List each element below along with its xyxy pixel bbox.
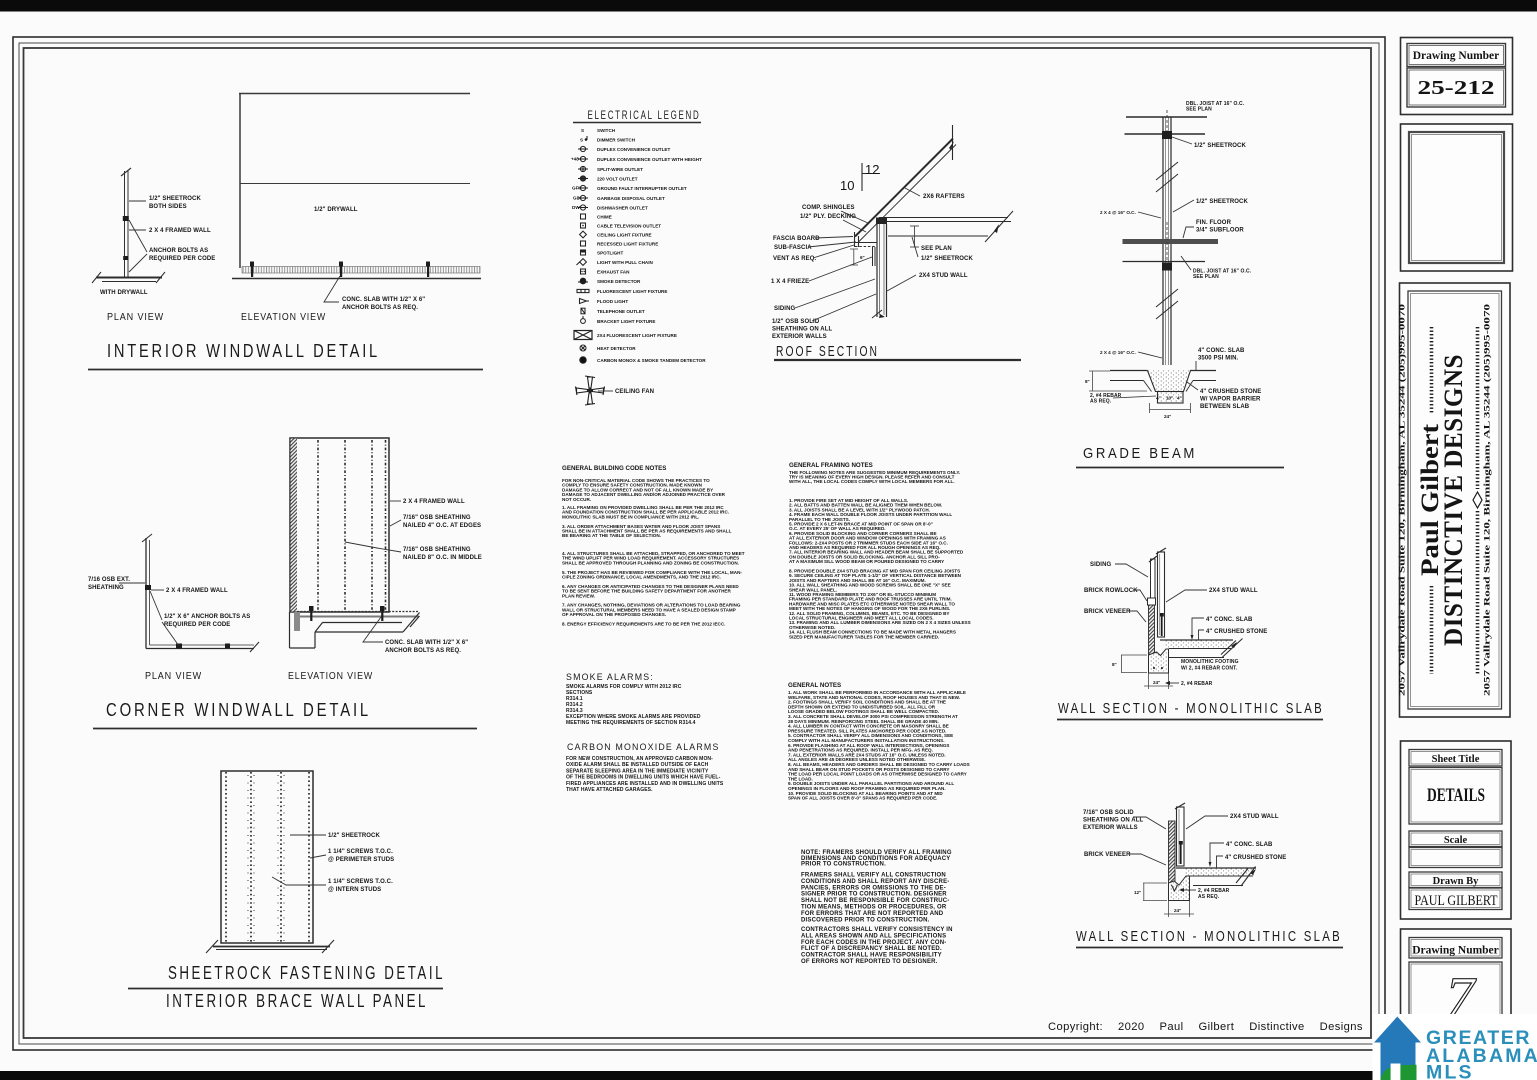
svg-text:1/2" SHEETROCK: 1/2" SHEETROCK xyxy=(921,256,973,262)
svg-text:SEE PLAN: SEE PLAN xyxy=(921,246,952,252)
svg-text:NAILED 8" O.C. IN MIDDLE: NAILED 8" O.C. IN MIDDLE xyxy=(403,555,482,561)
svg-text:220 VOLT OUTLET: 220 VOLT OUTLET xyxy=(597,176,638,181)
svg-text:4" CONC. SLAB: 4" CONC. SLAB xyxy=(1198,348,1245,354)
svg-text:FIN. FLOOR: FIN. FLOOR xyxy=(1196,220,1232,226)
svg-text:NAILED 4" O.C. AT EDGES: NAILED 4" O.C. AT EDGES xyxy=(403,523,481,529)
svg-text:ALL AREAS SHOWN AND ALL SPECIF: ALL AREAS SHOWN AND ALL SPECIFICATIONS xyxy=(801,933,946,939)
svg-text:SIGNER PRIOR TO CONSTRUCTION.: SIGNER PRIOR TO CONSTRUCTION. DESIGNER xyxy=(801,892,947,898)
svg-text:MONOLITHIC SLAB MUST BE IN COM: MONOLITHIC SLAB MUST BE IN COMPLIANCE WI… xyxy=(562,514,699,519)
svg-text:REQUIRED PER CODE: REQUIRED PER CODE xyxy=(164,622,230,628)
svg-text:CONC. SLAB WITH 1/2" X 6": CONC. SLAB WITH 1/2" X 6" xyxy=(385,640,468,646)
svg-text:AS REQ.: AS REQ. xyxy=(1198,894,1220,900)
svg-text:BRICK VENEER: BRICK VENEER xyxy=(1084,609,1131,615)
svg-text:FOR EACH CODES IN THE PROJECT.: FOR EACH CODES IN THE PROJECT. ANY CON- xyxy=(801,940,946,946)
svg-text:6": 6" xyxy=(860,255,865,260)
svg-text:2X4 FLUORESCENT LIGHT FIXTURE: 2X4 FLUORESCENT LIGHT FIXTURE xyxy=(597,333,677,338)
svg-text:2X4 STUD WALL: 2X4 STUD WALL xyxy=(1230,814,1279,820)
svg-text:HEAT DETECTOR: HEAT DETECTOR xyxy=(597,346,636,351)
svg-text:Drawing Number: Drawing Number xyxy=(1413,50,1500,62)
svg-text:MONOLITHIC FOOTING: MONOLITHIC FOOTING xyxy=(1181,659,1239,665)
svg-text:FLUORESCENT LIGHT FIXTURE: FLUORESCENT LIGHT FIXTURE xyxy=(597,289,667,294)
svg-text:OF APPROVAL ON THE PROPOSED CH: OF APPROVAL ON THE PROPOSED CHANGES. xyxy=(562,612,666,617)
svg-text:WITH ALL, THE LOCAL CODES COMP: WITH ALL, THE LOCAL CODES COMPLY WITH LO… xyxy=(789,479,955,484)
svg-text:25-212: 25-212 xyxy=(1418,77,1495,99)
svg-text:LIGHT WITH PULL CHAIN: LIGHT WITH PULL CHAIN xyxy=(597,260,653,265)
svg-text:ANCHOR BOLTS AS: ANCHOR BOLTS AS xyxy=(149,248,208,254)
svg-text:CONTRACTORS SHALL VERIFY CONSI: CONTRACTORS SHALL VERIFY CONSISTENCY IN xyxy=(801,927,953,933)
svg-text:@ PERIMETER STUDS: @ PERIMETER STUDS xyxy=(328,857,394,863)
svg-text:WALL SECTION - MONOLITHIC SLAB: WALL SECTION - MONOLITHIC SLAB xyxy=(1076,928,1342,945)
svg-text:CARBON MONOX & SMOKE TANDEM DE: CARBON MONOX & SMOKE TANDEM DETECTOR xyxy=(597,358,706,363)
svg-text:RECESSED LIGHT FIXTURE: RECESSED LIGHT FIXTURE xyxy=(597,241,658,246)
svg-text:PLAN VIEW: PLAN VIEW xyxy=(145,670,202,682)
svg-text:7/16" OSB SHEATHING: 7/16" OSB SHEATHING xyxy=(403,547,471,553)
svg-text:BETWEEN SLAB: BETWEEN SLAB xyxy=(1200,404,1250,410)
svg-text:OF THE BEDROOMS IN DWELLING UN: OF THE BEDROOMS IN DWELLING UNITS WHICH … xyxy=(566,775,721,781)
svg-text:MEETING THE REQUIREMENTS OF SE: MEETING THE REQUIREMENTS OF SECTION R314… xyxy=(566,720,696,726)
svg-text:REQUIRED PER CODE: REQUIRED PER CODE xyxy=(149,256,215,262)
svg-text:GENERAL BUILDING CODE NOTES: GENERAL BUILDING CODE NOTES xyxy=(562,465,666,472)
svg-text:CEILING LIGHT FIXTURE: CEILING LIGHT FIXTURE xyxy=(597,232,652,237)
svg-text:CONTRACTOR SHALL HAVE RESPONSI: CONTRACTOR SHALL HAVE RESPONSIBILITY xyxy=(801,953,942,959)
svg-text:WITH DRYWALL: WITH DRYWALL xyxy=(100,290,148,296)
svg-text:1/2" SHEETROCK: 1/2" SHEETROCK xyxy=(328,833,380,839)
svg-text:GENERAL NOTES: GENERAL NOTES xyxy=(788,682,841,689)
svg-text:+48: +48 xyxy=(571,157,579,162)
svg-text:NOT OCCUR.: NOT OCCUR. xyxy=(562,497,591,502)
svg-text:SMOKE ALARMS:: SMOKE ALARMS: xyxy=(566,672,654,682)
svg-text:SPAN OF ALL JOISTS OVER 8'-0": SPAN OF ALL JOISTS OVER 8'-0" SPANS AS R… xyxy=(788,796,937,801)
svg-text:W/ 2, #4 REBAR CONT.: W/ 2, #4 REBAR CONT. xyxy=(1181,666,1238,672)
svg-text:BRACKET LIGHT FIXTURE: BRACKET LIGHT FIXTURE xyxy=(597,319,655,324)
svg-text:7/16" OSB SHEATHING: 7/16" OSB SHEATHING xyxy=(403,515,471,521)
svg-text:PRIOR TO CONSTRUCTION.: PRIOR TO CONSTRUCTION. xyxy=(801,862,886,868)
svg-text:TELEPHONE OUTLET: TELEPHONE OUTLET xyxy=(597,309,645,314)
svg-text:SEE PLAN: SEE PLAN xyxy=(1193,274,1219,280)
svg-text:4" CRUSHED STONE: 4" CRUSHED STONE xyxy=(1225,855,1286,861)
svg-text:BOTH SIDES: BOTH SIDES xyxy=(149,204,187,210)
svg-text:4" CRUSHED STONE: 4" CRUSHED STONE xyxy=(1200,389,1261,395)
svg-text:2X6 RAFTERS: 2X6 RAFTERS xyxy=(923,194,965,200)
svg-text:DIMMER SWITCH: DIMMER SWITCH xyxy=(597,137,636,142)
svg-text:ELEVATION VIEW: ELEVATION VIEW xyxy=(241,311,326,323)
svg-text:Drawn By: Drawn By xyxy=(1433,876,1480,887)
svg-text:SIDING: SIDING xyxy=(774,306,796,312)
svg-text:DUPLEX CONVENIENCE OUTLET: DUPLEX CONVENIENCE OUTLET xyxy=(597,147,670,152)
svg-text:SHEATHING ON ALL: SHEATHING ON ALL xyxy=(772,327,832,333)
svg-text:Drawing Number: Drawing Number xyxy=(1412,945,1499,957)
svg-text:24": 24" xyxy=(1164,414,1171,419)
svg-text:FLICT OF A DISCREPANCY SHALL B: FLICT OF A DISCREPANCY SHALL BE NOTED. xyxy=(801,946,942,952)
svg-text:@ INTERN STUDS: @ INTERN STUDS xyxy=(328,887,381,893)
svg-text:THE LOAD PER LOCAL POINT LOADS: THE LOAD PER LOCAL POINT LOADS OR AS OTH… xyxy=(788,772,967,777)
svg-text:CARBON MONOXIDE ALARMS: CARBON MONOXIDE ALARMS xyxy=(567,742,720,752)
svg-text:4": 4" xyxy=(1156,396,1161,401)
svg-text:7/16" OSB SOLID: 7/16" OSB SOLID xyxy=(1083,810,1134,816)
svg-text:ELECTRICAL LEGEND: ELECTRICAL LEGEND xyxy=(588,108,701,122)
svg-text:3/4" SUBFLOOR: 3/4" SUBFLOOR xyxy=(1196,228,1244,234)
svg-text:24": 24" xyxy=(1153,680,1160,685)
svg-text:SPLIT-WIRE OUTLET: SPLIT-WIRE OUTLET xyxy=(597,167,643,172)
svg-text:1/2" SHEETROCK: 1/2" SHEETROCK xyxy=(1196,199,1248,205)
svg-text:CEILING FAN: CEILING FAN xyxy=(615,389,654,395)
svg-text:CIPLE ZONING ORDINANCE, LOCAL: CIPLE ZONING ORDINANCE, LOCAL AMENDMENTS… xyxy=(562,575,721,580)
svg-text:ANCHOR BOLTS AS REQ.: ANCHOR BOLTS AS REQ. xyxy=(342,305,418,311)
svg-text:CHIME: CHIME xyxy=(597,214,612,219)
svg-text:FLOOD LIGHT: FLOOD LIGHT xyxy=(597,299,628,304)
svg-text:2X4 STUD WALL: 2X4 STUD WALL xyxy=(919,273,968,279)
svg-text:1 1/4" SCREWS T.O.C.: 1 1/4" SCREWS T.O.C. xyxy=(328,849,393,855)
svg-text:FOR NEW CONSTRUCTION, AN APPRO: FOR NEW CONSTRUCTION, AN APPROVED CARBON… xyxy=(566,756,713,762)
svg-text:AT A MAXIMUM SILL WOOD BEAM OR: AT A MAXIMUM SILL WOOD BEAM OR POURED DE… xyxy=(789,559,944,564)
svg-text:OF ERRORS NOT REPORTED TO DESI: OF ERRORS NOT REPORTED TO DESIGNER. xyxy=(801,959,938,965)
svg-text:ROOF SECTION: ROOF SECTION xyxy=(776,343,879,360)
svg-text:MLS: MLS xyxy=(1426,1062,1474,1080)
svg-text:COMP. SHINGLES: COMP. SHINGLES xyxy=(802,205,855,211)
svg-text:SPOTLIGHT: SPOTLIGHT xyxy=(597,250,623,255)
svg-text:SUB-FASCIA: SUB-FASCIA xyxy=(774,245,812,251)
svg-text:1/2" X 6" ANCHOR BOLTS AS: 1/2" X 6" ANCHOR BOLTS AS xyxy=(164,614,250,620)
svg-text:FRAMERS SHALL VERIFY ALL CONST: FRAMERS SHALL VERIFY ALL CONSTRUCTION xyxy=(801,873,946,879)
svg-text:FOR ERRORS THAT ARE NOT REPORT: FOR ERRORS THAT ARE NOT REPORTED AND xyxy=(801,911,944,917)
svg-text:S: S xyxy=(580,138,583,143)
svg-text:OXIDE ALARM SHALL BE INSTALLED: OXIDE ALARM SHALL BE INSTALLED OUTSIDE O… xyxy=(566,762,709,768)
svg-text:PLAN VIEW: PLAN VIEW xyxy=(107,311,164,323)
svg-text:2X4 STUD WALL: 2X4 STUD WALL xyxy=(1209,588,1258,594)
svg-text:S: S xyxy=(581,128,584,133)
svg-text:PLAN REVIEW.: PLAN REVIEW. xyxy=(562,593,595,598)
svg-text:THAT HAVE ATTACHED GARAGES.: THAT HAVE ATTACHED GARAGES. xyxy=(566,787,653,793)
svg-text:12": 12" xyxy=(1134,890,1141,895)
svg-text:1/2" SHEETROCK: 1/2" SHEETROCK xyxy=(1194,143,1246,149)
svg-text:24": 24" xyxy=(1174,908,1181,913)
svg-text:2057 Vallrydale Road Suite 120: 2057 Vallrydale Road Suite 120, Birmingh… xyxy=(1482,304,1492,696)
svg-text:DETAILS: DETAILS xyxy=(1427,785,1485,806)
svg-text:2 X 4 FRAMED WALL: 2 X 4 FRAMED WALL xyxy=(149,228,211,234)
svg-text:WALL SECTION - MONOLITHIC SLAB: WALL SECTION - MONOLITHIC SLAB xyxy=(1058,700,1324,717)
svg-text:4" CRUSHED STONE: 4" CRUSHED STONE xyxy=(1206,629,1267,635)
svg-text:2, #4 REBAR: 2, #4 REBAR xyxy=(1181,681,1213,687)
svg-text:SHALL NOT BE RESPONSIBLE FOR C: SHALL NOT BE RESPONSIBLE FOR CONSTRUC- xyxy=(801,898,950,904)
svg-text:SHEATHING: SHEATHING xyxy=(88,585,124,591)
svg-text:DUPLEX CONVENIENCE OUTLET WITH: DUPLEX CONVENIENCE OUTLET WITH HEIGHT xyxy=(597,157,702,162)
svg-text:Copyright: 2020 Paul Gilber: Copyright: 2020 Paul Gilbert Distinctive… xyxy=(1048,1021,1363,1033)
svg-text:2 X 4 @ 16" O.C.: 2 X 4 @ 16" O.C. xyxy=(1100,350,1136,355)
svg-text:1/2" SHEETROCK: 1/2" SHEETROCK xyxy=(149,196,201,202)
svg-text:EXTERIOR WALLS: EXTERIOR WALLS xyxy=(772,334,827,340)
svg-text:SEE PLAN: SEE PLAN xyxy=(1186,107,1212,113)
svg-text:1/2" PLY. DECKING: 1/2" PLY. DECKING xyxy=(800,214,856,220)
svg-text:Scale: Scale xyxy=(1444,835,1468,846)
svg-text:DISTINCTIVE DESIGNS: DISTINCTIVE DESIGNS xyxy=(1438,354,1468,646)
svg-text:CORNER WINDWALL DETAIL: CORNER WINDWALL DETAIL xyxy=(106,700,371,720)
svg-text:PAUL GILBERT: PAUL GILBERT xyxy=(1415,893,1498,909)
svg-text:1/2" DRYWALL: 1/2" DRYWALL xyxy=(314,207,358,213)
svg-text:EXTERIOR WALLS: EXTERIOR WALLS xyxy=(1083,825,1138,831)
svg-text:2 X 4 FRAMED WALL: 2 X 4 FRAMED WALL xyxy=(166,588,228,594)
svg-text:4" CONC. SLAB: 4" CONC. SLAB xyxy=(1206,617,1253,623)
svg-text:8": 8" xyxy=(1085,379,1090,384)
svg-text:SWITCH: SWITCH xyxy=(597,128,616,133)
svg-text:BRICK ROWLOCK: BRICK ROWLOCK xyxy=(1084,588,1138,594)
svg-text:8": 8" xyxy=(1112,662,1117,667)
svg-text:2 X 4 FRAMED WALL: 2 X 4 FRAMED WALL xyxy=(403,499,465,505)
svg-text:CONDITIONS AND SHALL REPORT AN: CONDITIONS AND SHALL REPORT ANY DISCRE- xyxy=(801,879,949,885)
svg-text:FIRED APPLIANCES ARE INSTALLED: FIRED APPLIANCES ARE INSTALLED AND IN DW… xyxy=(566,781,724,787)
svg-text:12: 12 xyxy=(865,162,879,177)
svg-text:7/16 OSB EXT.: 7/16 OSB EXT. xyxy=(88,577,130,583)
svg-text:SHEETROCK FASTENING DETAIL: SHEETROCK FASTENING DETAIL xyxy=(168,963,445,983)
svg-text:3500 PSI MIN.: 3500 PSI MIN. xyxy=(1198,356,1239,362)
svg-text:SIZED PER MANUFACTURER TABLES: SIZED PER MANUFACTURER TABLES FOR THE ME… xyxy=(789,634,939,639)
svg-text:PANCIES, ERRORS OR OMISSIONS T: PANCIES, ERRORS OR OMISSIONS TO THE DE- xyxy=(801,885,946,891)
svg-text:AS REQ.: AS REQ. xyxy=(1090,399,1112,405)
svg-text:SEPARATE SLEEPING AREA IN THE: SEPARATE SLEEPING AREA IN THE IMMEDIATE … xyxy=(566,768,709,774)
svg-text:1 X 4 FRIEZE: 1 X 4 FRIEZE xyxy=(771,279,809,285)
svg-text:2057 Vallrydale Road Suite 120: 2057 Vallrydale Road Suite 120, Birmingh… xyxy=(1397,304,1407,696)
svg-text:DISHWASHER OUTLET: DISHWASHER OUTLET xyxy=(597,205,648,210)
svg-text:GARBAGE DISPOSAL OUTLET: GARBAGE DISPOSAL OUTLET xyxy=(597,196,665,201)
svg-text:1 1/4" SCREWS T.O.C.: 1 1/4" SCREWS T.O.C. xyxy=(328,879,393,885)
svg-text:10: 10 xyxy=(840,178,854,193)
svg-text:ELEVATION VIEW: ELEVATION VIEW xyxy=(288,670,373,682)
svg-text:TION MEANS, METHODS OR PROCEDU: TION MEANS, METHODS OR PROCEDURES, OR xyxy=(801,905,947,911)
svg-text:BRICK VENEER: BRICK VENEER xyxy=(1084,852,1131,858)
svg-text:10": 10" xyxy=(1166,396,1173,401)
svg-text:GROUND FAULT INTERRUPTER OUTLE: GROUND FAULT INTERRUPTER OUTLET xyxy=(597,186,687,191)
svg-text:8. ENERGY EFFICIENCY REQUIREME: 8. ENERGY EFFICIENCY REQUIREMENTS ARE TO… xyxy=(562,622,725,627)
svg-text:GRADE BEAM: GRADE BEAM xyxy=(1083,445,1197,462)
svg-text:VENT AS REQ.: VENT AS REQ. xyxy=(773,256,817,262)
svg-text:SIDING: SIDING xyxy=(1090,562,1112,568)
svg-text:4": 4" xyxy=(1177,396,1182,401)
svg-text:2 X 4 @ 16" O.C.: 2 X 4 @ 16" O.C. xyxy=(1100,210,1136,215)
svg-text:FASCIA BOARD: FASCIA BOARD xyxy=(773,236,820,242)
svg-text:1/2" OSB SOLID: 1/2" OSB SOLID xyxy=(772,319,820,325)
svg-text:INTERIOR WINDWALL DETAIL: INTERIOR WINDWALL DETAIL xyxy=(107,341,380,361)
svg-text:CONC. SLAB WITH 1/2" X 6": CONC. SLAB WITH 1/2" X 6" xyxy=(342,297,425,303)
svg-text:EXHAUST FAN: EXHAUST FAN xyxy=(597,269,630,274)
svg-text:INTERIOR BRACE WALL PANEL: INTERIOR BRACE WALL PANEL xyxy=(166,991,428,1011)
svg-text:DISCOVERED PRIOR TO CONSTRUCTI: DISCOVERED PRIOR TO CONSTRUCTION. xyxy=(801,917,930,923)
svg-text:CABLE TELEVISION OUTLET: CABLE TELEVISION OUTLET xyxy=(597,223,661,228)
svg-text:ANCHOR BOLTS AS REQ.: ANCHOR BOLTS AS REQ. xyxy=(385,648,461,654)
svg-text:4" CONC. SLAB: 4" CONC. SLAB xyxy=(1226,842,1273,848)
svg-text:SHALL BE APPROVED THROUGH PLAN: SHALL BE APPROVED THROUGH PLANNING AND Z… xyxy=(562,560,739,565)
svg-text:Sheet Title: Sheet Title xyxy=(1432,754,1480,765)
svg-text:BE BEARING AT THE TABLE OF SEL: BE BEARING AT THE TABLE OF SELECTION. xyxy=(562,533,661,538)
svg-text:SMOKE DETECTOR: SMOKE DETECTOR xyxy=(597,279,641,284)
svg-text:GENERAL FRAMING NOTES: GENERAL FRAMING NOTES xyxy=(789,462,873,469)
svg-text:SHEATHING ON ALL: SHEATHING ON ALL xyxy=(1083,818,1143,824)
svg-text:W/ VAPOR BARRIER: W/ VAPOR BARRIER xyxy=(1200,397,1261,403)
